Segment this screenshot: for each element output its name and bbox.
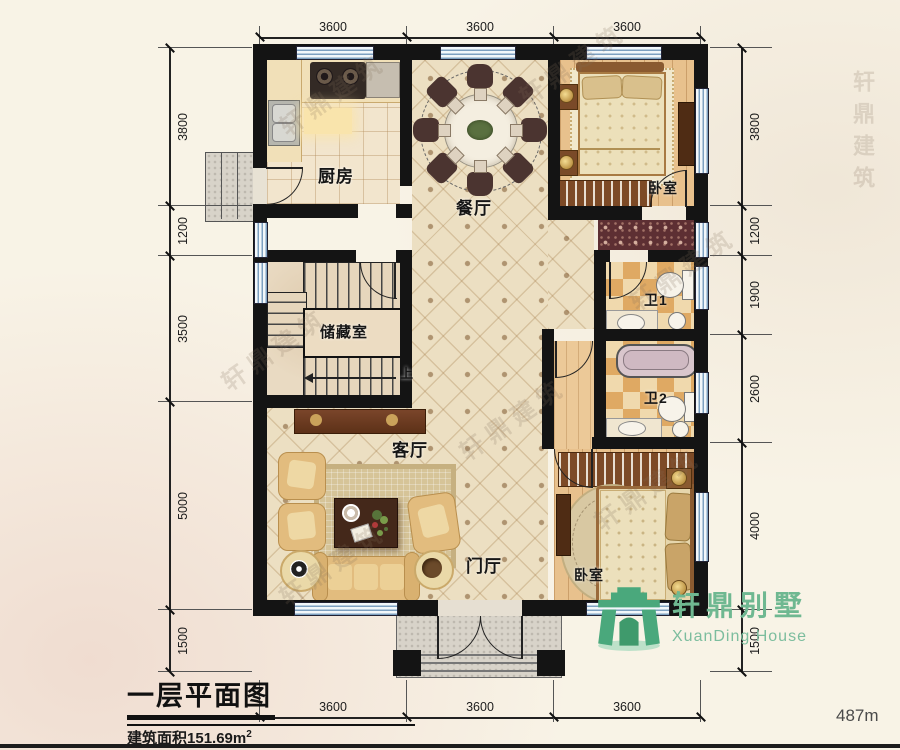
dim-label: 2600: [748, 367, 764, 411]
wall: [594, 250, 606, 449]
floor-nook: [548, 220, 594, 329]
stair-up-label: 上: [400, 363, 414, 382]
room-label-foyer: 门厅: [466, 552, 502, 577]
dining-chair: [467, 172, 493, 196]
dining-chair: [521, 118, 547, 142]
dim-line-right: [741, 48, 743, 672]
room-label-bath1: 卫1: [644, 290, 668, 310]
title-block: 一层平面图 建筑面积151.69m2: [127, 674, 415, 748]
place-setting: [474, 160, 487, 173]
window: [695, 222, 709, 258]
stove-burner: [316, 68, 333, 85]
window: [254, 262, 268, 304]
dim-label: 3800: [748, 105, 764, 149]
wall: [396, 250, 412, 262]
dim-label: 1900: [748, 273, 764, 317]
dim-label: 1200: [176, 209, 192, 253]
gate-logo-icon: [596, 584, 662, 657]
wall: [253, 204, 358, 218]
dining-centerpiece: [467, 120, 493, 140]
floor-carpet: [598, 220, 694, 250]
scale-note: 487m: [836, 706, 879, 726]
bathtub-inner: [623, 350, 689, 370]
porch-step: [404, 662, 552, 664]
wall: [253, 44, 267, 168]
dim-label: 3500: [176, 307, 192, 351]
wall: [253, 250, 356, 262]
place-setting: [438, 124, 451, 137]
door-leaf: [521, 616, 523, 659]
floorplan-canvas: 厨房 餐厅 卧室 卫1 卫2 储藏室 客厅 门厅 卧室 上: [0, 0, 900, 750]
window: [586, 46, 662, 60]
bedroom1-wardrobe: [556, 180, 652, 207]
place-setting: [474, 88, 487, 101]
window: [695, 266, 709, 310]
footer-rule: [0, 744, 900, 748]
bedroom2-dresser: [556, 494, 571, 556]
title-underline-thin: [127, 724, 415, 726]
wall: [686, 206, 708, 220]
stair-flight-left: [267, 292, 307, 348]
wall: [592, 437, 708, 449]
side-table-plate: [290, 560, 308, 578]
armchair-cushion: [287, 511, 317, 541]
side-table-plant: [422, 558, 442, 578]
entry-threshold: [438, 600, 522, 616]
dining-chair: [413, 118, 439, 142]
door-leaf: [394, 262, 396, 299]
room-label-bedroom2: 卧室: [574, 565, 604, 585]
bed1-headboard: [576, 62, 664, 72]
wall: [400, 262, 412, 408]
room-label-living: 客厅: [392, 436, 428, 461]
wall: [594, 250, 610, 262]
dim-label: 3600: [605, 20, 649, 36]
room-label-kitchen: 厨房: [318, 162, 354, 187]
dim-label: 1500: [176, 619, 192, 663]
title-underline-thick: [127, 715, 275, 720]
fridge: [366, 62, 400, 98]
window: [695, 88, 709, 174]
porch-step: [404, 654, 552, 656]
lamp: [559, 155, 574, 170]
plan-title: 一层平面图: [127, 674, 415, 713]
pedestal-sink: [668, 312, 686, 330]
dim-label: 3600: [311, 20, 355, 36]
dim-label: 3600: [458, 700, 502, 716]
place-setting: [510, 124, 523, 137]
window: [695, 492, 709, 562]
door-leaf: [591, 449, 593, 488]
door-leaf: [437, 616, 439, 659]
dim-label: 3800: [176, 105, 192, 149]
dim-label: 5000: [176, 484, 192, 528]
dim-label: 3600: [458, 20, 502, 36]
porch-column: [393, 650, 421, 676]
table-flowers: [372, 510, 382, 520]
room-label-dining: 餐厅: [456, 194, 492, 219]
side-porch-line: [237, 153, 238, 219]
cabinet-decor: [310, 414, 322, 426]
sofa-cushion: [380, 564, 404, 590]
window: [296, 46, 374, 60]
stair-direction-line: [312, 377, 396, 379]
side-porch-line: [221, 153, 222, 219]
wall: [396, 204, 412, 218]
dining-chair: [467, 64, 493, 88]
wall: [400, 44, 412, 186]
dim-label: 1200: [748, 209, 764, 253]
brand-logo: 轩鼎别墅 XuanDing House: [596, 584, 808, 657]
dim-label: 3600: [605, 700, 649, 716]
window: [440, 46, 516, 60]
window: [695, 372, 709, 414]
window: [294, 602, 398, 616]
wall: [548, 44, 560, 220]
lamp: [559, 88, 574, 103]
bed1-footline: [580, 148, 660, 150]
door-leaf: [266, 167, 303, 169]
dim-line-left: [169, 48, 171, 672]
stair-direction-arrow: [304, 373, 313, 383]
kitchen-island: [304, 108, 352, 134]
room-label-bedroom1: 卧室: [648, 178, 678, 198]
table-plate: [342, 504, 360, 522]
watermark-text: 轩鼎建筑: [846, 70, 878, 198]
basin: [618, 421, 646, 436]
wall: [594, 329, 708, 341]
stove-burner: [342, 68, 359, 85]
armchair-cushion: [286, 459, 316, 489]
brand-name-en: XuanDing House: [672, 628, 808, 646]
dim-line-top: [260, 37, 701, 39]
porch-column: [537, 650, 565, 676]
room-label-bath2: 卫2: [644, 388, 668, 408]
dim-label: 4000: [748, 504, 764, 548]
door-leaf: [555, 341, 557, 378]
window: [254, 222, 268, 258]
wall: [548, 206, 642, 220]
bed1-pillow: [581, 75, 622, 100]
wall: [542, 437, 552, 449]
lamp: [671, 470, 687, 486]
sofa-cushion: [354, 564, 378, 590]
pedestal-sink: [672, 421, 689, 438]
door-leaf: [609, 262, 611, 299]
sink-bowl: [272, 123, 296, 142]
bed1-pillow: [621, 75, 662, 100]
sink-bowl: [272, 104, 296, 123]
brand-name-cn: 轩鼎别墅: [672, 584, 808, 624]
porch-step: [404, 670, 552, 672]
sofa-cushion: [328, 564, 352, 590]
room-label-storage: 储藏室: [320, 321, 368, 342]
side-door-gap: [253, 168, 267, 204]
cabinet-decor: [386, 414, 398, 426]
area-sup: 2: [246, 729, 252, 740]
wall: [542, 329, 554, 449]
door-leaf: [685, 170, 687, 207]
wall: [253, 395, 412, 408]
